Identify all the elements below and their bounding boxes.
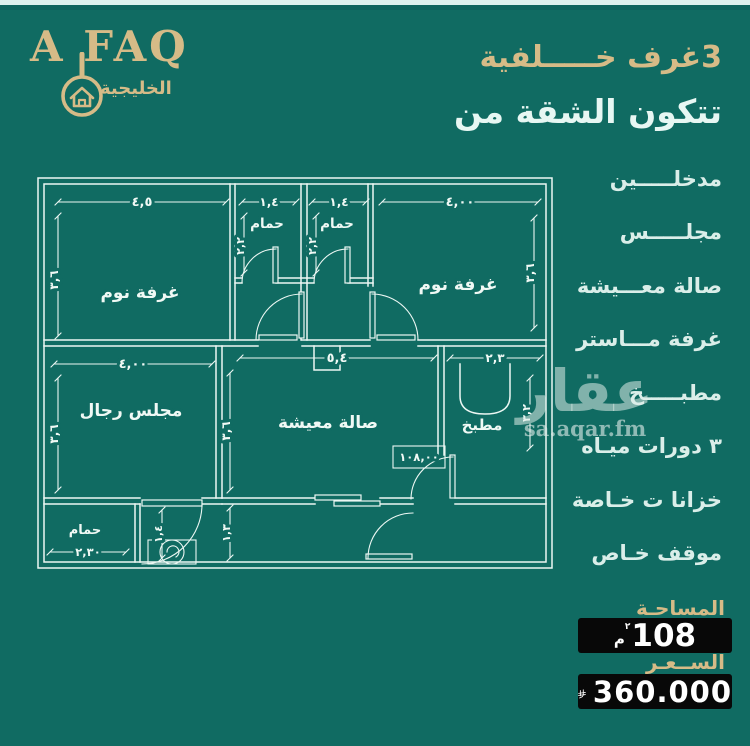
door-arcs (142, 247, 455, 564)
dim-majlis-width: ٤,٠٠ (119, 357, 148, 372)
area-unit: ٢م (614, 630, 631, 648)
dim-bath3-height: ١,٤ (152, 525, 165, 543)
room-label-bath2: حمام (320, 216, 354, 232)
sliding-door-icon (315, 495, 380, 506)
dim-bath2-width: ١,٤ (329, 195, 348, 209)
dim-bedroom2-height: ٣,٦ (523, 263, 537, 282)
dim-bath2-height: ٢,٢ (306, 237, 319, 255)
kitchen-counter (460, 364, 510, 414)
dim-living-height: ٣,٦ (219, 421, 233, 440)
dim-kitchen-width: ٢,٣ (485, 351, 505, 365)
page-subtitle: تتكون الشقة من (454, 92, 722, 131)
price-label: الســعـر (646, 650, 725, 674)
dim-entry-height: ١,٣ (220, 524, 233, 542)
area-value: 108 (631, 618, 696, 654)
dim-majlis-height: ٣,٦ (47, 424, 61, 443)
room-label-bath3: حمام (69, 523, 102, 538)
room-label-majlis: مجلس رجال (80, 401, 183, 421)
page-title: 3غرف خـــــلفية (480, 40, 723, 75)
dim-bedroom1-width: ٤,٥ (132, 195, 153, 210)
dim-bedroom1-height: ٣,٦ (47, 270, 61, 289)
dim-kitchen-height: ٣,٢ (520, 404, 533, 422)
dim-bath1-height: ٢,٢ (234, 237, 247, 255)
dim-bath1-width: ١,٤ (259, 195, 278, 209)
dim-living-width: ٥,٤ (327, 351, 348, 366)
room-label-bath1: حمام (250, 216, 284, 232)
dim-bath3-width: ٢,٣٠ (75, 545, 100, 559)
area-label: المساحـة (636, 596, 725, 620)
price-value: 360.000 (593, 675, 732, 709)
area-value-box: ٢م 108 (578, 618, 732, 653)
price-value-box: 360.000 (578, 674, 732, 709)
dimension-lines (47, 199, 543, 561)
saudi-riyal-icon (578, 685, 586, 703)
room-label-bedroom2: غرفة نوم (418, 275, 497, 295)
room-label-living: صالة معيشة (278, 413, 378, 433)
brand-logo-subtitle: الخليجية (100, 78, 172, 99)
floor-plan: ٤,٥ ٣,٦ ١,٤ ٢,٢ ١,٤ ٢,٢ ٤,٠٠ ٣,٦ ٤,٠٠ ٣,… (30, 168, 565, 580)
room-label-bedroom1: غرفة نوم (100, 283, 179, 303)
area-note-value: ١٠٨,٠٠ (399, 450, 438, 464)
dim-bedroom2-width: ٤,٠٠ (446, 195, 475, 210)
plan-walls (38, 178, 552, 568)
top-strip-shadow (0, 5, 750, 10)
room-label-kitchen: مطبخ (462, 416, 503, 434)
